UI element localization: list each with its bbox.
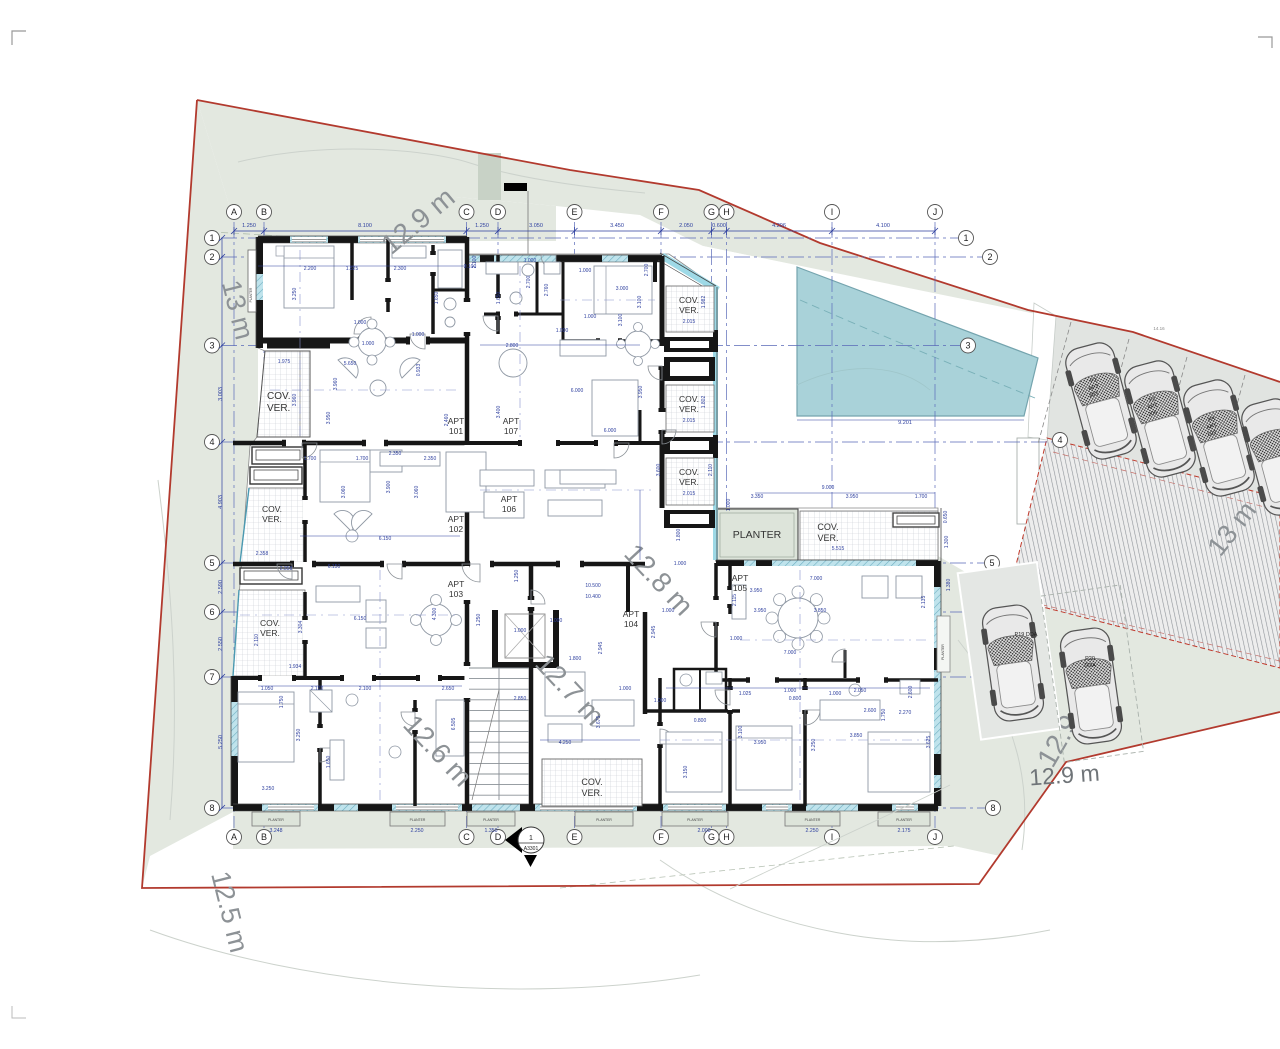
svg-text:2.015: 2.015 bbox=[683, 491, 696, 497]
svg-text:1.050: 1.050 bbox=[261, 686, 274, 692]
svg-text:8: 8 bbox=[990, 803, 995, 813]
svg-text:1.982: 1.982 bbox=[701, 296, 707, 309]
svg-text:2.000: 2.000 bbox=[698, 828, 711, 834]
svg-text:PLANTER: PLANTER bbox=[596, 818, 612, 822]
svg-text:C: C bbox=[463, 832, 470, 842]
svg-text:3.304: 3.304 bbox=[298, 621, 304, 634]
svg-text:PLANTER: PLANTER bbox=[483, 818, 499, 822]
svg-text:PLANTER: PLANTER bbox=[941, 644, 945, 660]
svg-text:2.358: 2.358 bbox=[256, 551, 269, 557]
svg-text:2.100: 2.100 bbox=[359, 686, 372, 692]
svg-text:1.000: 1.000 bbox=[514, 628, 527, 634]
svg-text:3.625: 3.625 bbox=[926, 736, 932, 749]
svg-text:5: 5 bbox=[989, 558, 994, 568]
svg-text:1.000: 1.000 bbox=[412, 332, 425, 338]
svg-text:6.150: 6.150 bbox=[379, 536, 392, 542]
svg-text:0.800: 0.800 bbox=[789, 696, 802, 702]
svg-text:3.950: 3.950 bbox=[638, 386, 644, 399]
svg-text:A3301: A3301 bbox=[524, 846, 539, 852]
svg-text:2.270: 2.270 bbox=[899, 710, 912, 716]
svg-text:1.350: 1.350 bbox=[485, 828, 498, 834]
svg-text:3.900: 3.900 bbox=[386, 481, 392, 494]
svg-text:2.200: 2.200 bbox=[304, 266, 317, 272]
svg-text:B: B bbox=[261, 207, 267, 217]
svg-text:VER.: VER. bbox=[679, 305, 699, 315]
svg-text:3.850: 3.850 bbox=[850, 733, 863, 739]
svg-text:3.950: 3.950 bbox=[754, 608, 767, 614]
svg-text:7.000: 7.000 bbox=[810, 576, 823, 582]
svg-text:PLANTER: PLANTER bbox=[687, 818, 703, 822]
svg-text:1.380: 1.380 bbox=[946, 579, 952, 592]
svg-text:3.248: 3.248 bbox=[270, 828, 283, 834]
svg-text:1.250: 1.250 bbox=[476, 614, 482, 627]
svg-text:1.300: 1.300 bbox=[944, 536, 950, 549]
svg-text:1.000: 1.000 bbox=[784, 688, 797, 694]
svg-text:14.16: 14.16 bbox=[1153, 326, 1165, 331]
svg-text:1.650: 1.650 bbox=[326, 756, 332, 769]
svg-text:4.100: 4.100 bbox=[876, 223, 890, 229]
svg-text:1.250: 1.250 bbox=[514, 570, 520, 583]
svg-text:3.950: 3.950 bbox=[326, 412, 332, 425]
svg-text:2.050: 2.050 bbox=[854, 688, 867, 694]
svg-text:106: 106 bbox=[502, 504, 516, 514]
svg-text:2.700: 2.700 bbox=[526, 276, 532, 289]
svg-text:104: 104 bbox=[624, 619, 638, 629]
svg-text:4.296: 4.296 bbox=[772, 223, 786, 229]
svg-text:VER.: VER. bbox=[817, 533, 838, 543]
svg-text:6.150: 6.150 bbox=[354, 616, 367, 622]
svg-text:3.100: 3.100 bbox=[738, 726, 744, 739]
svg-text:7: 7 bbox=[209, 672, 214, 682]
svg-text:3.060: 3.060 bbox=[414, 486, 420, 499]
svg-text:102: 102 bbox=[449, 524, 463, 534]
svg-text:9.201: 9.201 bbox=[898, 420, 912, 426]
svg-text:A: A bbox=[231, 832, 237, 842]
svg-text:2.300: 2.300 bbox=[394, 266, 407, 272]
svg-text:1.700: 1.700 bbox=[915, 494, 928, 500]
svg-text:105: 105 bbox=[733, 583, 747, 593]
svg-text:6: 6 bbox=[209, 607, 214, 617]
svg-text:PLANTER: PLANTER bbox=[805, 818, 821, 822]
svg-text:1: 1 bbox=[529, 835, 533, 842]
svg-text:A: A bbox=[231, 207, 237, 217]
svg-text:2.100: 2.100 bbox=[464, 264, 477, 270]
svg-text:1.700: 1.700 bbox=[356, 456, 369, 462]
svg-text:H: H bbox=[723, 832, 730, 842]
svg-text:APT: APT bbox=[732, 573, 749, 583]
svg-text:5: 5 bbox=[209, 558, 214, 568]
svg-text:4: 4 bbox=[209, 437, 214, 447]
svg-text:3.600: 3.600 bbox=[656, 464, 662, 477]
svg-text:101: 101 bbox=[449, 426, 463, 436]
svg-text:VER.: VER. bbox=[260, 628, 280, 638]
svg-text:2.460: 2.460 bbox=[444, 414, 450, 427]
svg-text:2.050: 2.050 bbox=[679, 223, 693, 229]
svg-text:H: H bbox=[723, 207, 730, 217]
svg-text:2.760: 2.760 bbox=[544, 284, 550, 297]
svg-text:2.650: 2.650 bbox=[442, 686, 455, 692]
svg-text:3.950: 3.950 bbox=[754, 740, 767, 746]
svg-text:3.350: 3.350 bbox=[751, 494, 764, 500]
svg-text:4.903: 4.903 bbox=[218, 495, 224, 509]
svg-text:PLANTER: PLANTER bbox=[410, 818, 426, 822]
svg-text:PLANTER: PLANTER bbox=[896, 818, 912, 822]
svg-text:1: 1 bbox=[963, 233, 968, 243]
svg-text:C: C bbox=[463, 207, 470, 217]
svg-text:2.600: 2.600 bbox=[908, 686, 914, 699]
svg-text:2.175: 2.175 bbox=[898, 828, 911, 834]
svg-text:3.250: 3.250 bbox=[296, 729, 302, 742]
svg-text:2: 2 bbox=[987, 252, 992, 262]
svg-text:1.000: 1.000 bbox=[730, 636, 743, 642]
svg-text:3.100: 3.100 bbox=[618, 314, 624, 327]
svg-text:1.000: 1.000 bbox=[829, 691, 842, 697]
svg-text:1.000: 1.000 bbox=[654, 698, 667, 704]
svg-text:1.750: 1.750 bbox=[881, 709, 887, 722]
svg-text:7.000: 7.000 bbox=[784, 650, 797, 656]
svg-text:2.015: 2.015 bbox=[683, 418, 696, 424]
svg-text:J: J bbox=[933, 207, 938, 217]
svg-text:APT: APT bbox=[448, 579, 465, 589]
svg-text:1.650: 1.650 bbox=[496, 292, 502, 305]
svg-text:0.800: 0.800 bbox=[694, 718, 707, 724]
svg-text:2.015: 2.015 bbox=[683, 319, 696, 325]
svg-text:I: I bbox=[831, 207, 834, 217]
svg-text:1.000: 1.000 bbox=[550, 618, 563, 624]
svg-text:PLANTER: PLANTER bbox=[733, 529, 782, 541]
svg-text:APT: APT bbox=[448, 514, 465, 524]
svg-text:10.500: 10.500 bbox=[585, 583, 601, 589]
svg-text:COV.: COV. bbox=[260, 618, 280, 628]
svg-text:APT: APT bbox=[448, 416, 465, 426]
svg-text:12.9 m: 12.9 m bbox=[1028, 760, 1100, 791]
svg-text:9.000: 9.000 bbox=[822, 485, 835, 491]
svg-text:2.115: 2.115 bbox=[732, 594, 738, 606]
svg-text:0.650: 0.650 bbox=[943, 511, 949, 524]
svg-text:2.150: 2.150 bbox=[311, 686, 324, 692]
svg-text:COV.: COV. bbox=[679, 295, 699, 305]
svg-text:8.100: 8.100 bbox=[358, 223, 372, 229]
svg-text:3.950: 3.950 bbox=[846, 494, 859, 500]
svg-text:3.050: 3.050 bbox=[529, 223, 543, 229]
svg-text:1.650: 1.650 bbox=[434, 292, 440, 305]
svg-text:3.960: 3.960 bbox=[292, 394, 298, 407]
svg-text:3.850: 3.850 bbox=[814, 608, 827, 614]
svg-text:2: 2 bbox=[209, 252, 214, 262]
svg-text:1.975: 1.975 bbox=[278, 359, 291, 365]
svg-text:3.250: 3.250 bbox=[811, 739, 817, 752]
svg-text:10.400: 10.400 bbox=[585, 594, 601, 600]
svg-text:1.750: 1.750 bbox=[279, 696, 285, 709]
svg-text:1.000: 1.000 bbox=[584, 314, 597, 320]
svg-text:P20: P20 bbox=[1085, 656, 1095, 662]
svg-text:2.800: 2.800 bbox=[506, 343, 519, 349]
svg-text:P19 DDA: P19 DDA bbox=[1015, 632, 1038, 638]
svg-text:2.600: 2.600 bbox=[864, 708, 877, 714]
svg-text:1.800: 1.800 bbox=[569, 656, 582, 662]
svg-text:COV.: COV. bbox=[817, 522, 838, 532]
svg-text:1.934: 1.934 bbox=[289, 664, 302, 670]
svg-text:2.945: 2.945 bbox=[598, 642, 604, 655]
svg-text:APT: APT bbox=[501, 494, 518, 504]
svg-text:J: J bbox=[933, 832, 938, 842]
svg-text:2.358: 2.358 bbox=[280, 566, 293, 572]
svg-text:APT: APT bbox=[503, 416, 520, 426]
svg-text:1.000: 1.000 bbox=[674, 561, 687, 567]
svg-text:2.135: 2.135 bbox=[921, 596, 927, 609]
svg-text:1: 1 bbox=[209, 233, 214, 243]
svg-text:3.250: 3.250 bbox=[262, 786, 275, 792]
svg-text:6.150: 6.150 bbox=[328, 564, 341, 570]
svg-text:103: 103 bbox=[449, 589, 463, 599]
svg-text:1.250: 1.250 bbox=[242, 223, 256, 229]
svg-text:3: 3 bbox=[209, 341, 214, 351]
svg-text:B: B bbox=[261, 832, 267, 842]
svg-text:3: 3 bbox=[965, 341, 970, 351]
svg-text:PLANTER: PLANTER bbox=[268, 818, 284, 822]
svg-text:VER.: VER. bbox=[267, 403, 290, 414]
svg-text:1.700: 1.700 bbox=[304, 456, 317, 462]
svg-text:2.590: 2.590 bbox=[218, 580, 224, 594]
svg-text:1.000: 1.000 bbox=[726, 499, 732, 512]
svg-text:E: E bbox=[571, 832, 577, 842]
svg-text:1.000: 1.000 bbox=[362, 341, 375, 347]
svg-text:3.950: 3.950 bbox=[750, 588, 763, 594]
svg-text:COV.: COV. bbox=[679, 467, 699, 477]
svg-text:D: D bbox=[495, 207, 502, 217]
svg-text:3.100: 3.100 bbox=[637, 296, 643, 309]
svg-text:2.350: 2.350 bbox=[424, 456, 437, 462]
svg-text:COV.: COV. bbox=[262, 504, 282, 514]
svg-text:1.800: 1.800 bbox=[676, 529, 682, 542]
svg-text:4: 4 bbox=[1057, 435, 1062, 445]
svg-text:3.675: 3.675 bbox=[596, 716, 602, 729]
svg-text:0.933: 0.933 bbox=[416, 364, 422, 377]
svg-text:3.400: 3.400 bbox=[496, 406, 502, 419]
svg-text:1.000: 1.000 bbox=[579, 268, 592, 274]
svg-text:2.550: 2.550 bbox=[218, 637, 224, 651]
svg-text:3.960: 3.960 bbox=[333, 378, 339, 391]
svg-text:COV.: COV. bbox=[679, 394, 699, 404]
svg-text:E: E bbox=[571, 207, 577, 217]
svg-text:6.000: 6.000 bbox=[571, 388, 584, 394]
svg-text:DDA: DDA bbox=[1084, 663, 1096, 669]
svg-text:3.000: 3.000 bbox=[616, 286, 629, 292]
svg-text:4.250: 4.250 bbox=[559, 740, 572, 746]
svg-text:APT: APT bbox=[623, 609, 640, 619]
svg-text:1.250: 1.250 bbox=[475, 223, 489, 229]
svg-text:2.945: 2.945 bbox=[651, 626, 657, 639]
svg-text:1.802: 1.802 bbox=[701, 396, 707, 409]
svg-text:2.110: 2.110 bbox=[254, 634, 260, 646]
svg-text:5.250: 5.250 bbox=[218, 735, 224, 749]
svg-text:2.250: 2.250 bbox=[806, 828, 819, 834]
svg-text:6.000: 6.000 bbox=[604, 428, 617, 434]
svg-text:1.000: 1.000 bbox=[556, 328, 569, 334]
svg-text:3.003: 3.003 bbox=[218, 387, 224, 401]
svg-text:5.515: 5.515 bbox=[832, 546, 845, 552]
svg-text:2.850: 2.850 bbox=[514, 696, 527, 702]
svg-text:COV.: COV. bbox=[581, 777, 602, 787]
svg-text:2.110: 2.110 bbox=[708, 464, 714, 476]
svg-text:VER.: VER. bbox=[679, 477, 699, 487]
svg-text:1.825: 1.825 bbox=[346, 266, 359, 272]
svg-text:VER.: VER. bbox=[679, 404, 699, 414]
svg-text:1.000: 1.000 bbox=[524, 258, 537, 264]
svg-text:1.025: 1.025 bbox=[739, 691, 752, 697]
svg-text:8: 8 bbox=[209, 803, 214, 813]
svg-text:1.000: 1.000 bbox=[619, 686, 632, 692]
svg-text:G: G bbox=[708, 207, 715, 217]
svg-text:3.060: 3.060 bbox=[341, 486, 347, 499]
svg-text:F: F bbox=[658, 832, 664, 842]
svg-text:3.250: 3.250 bbox=[292, 288, 298, 301]
svg-text:2.700: 2.700 bbox=[644, 264, 650, 277]
svg-text:107: 107 bbox=[504, 426, 518, 436]
svg-text:5.650: 5.650 bbox=[344, 361, 357, 367]
svg-text:3.150: 3.150 bbox=[683, 766, 689, 779]
svg-text:6.505: 6.505 bbox=[451, 718, 457, 731]
svg-text:1.000: 1.000 bbox=[354, 320, 367, 326]
svg-text:4.300: 4.300 bbox=[432, 608, 438, 621]
svg-text:2.350: 2.350 bbox=[389, 451, 402, 457]
svg-text:COV.: COV. bbox=[267, 391, 291, 402]
svg-text:1.000: 1.000 bbox=[662, 608, 675, 614]
svg-text:VER.: VER. bbox=[262, 514, 282, 524]
svg-text:3.450: 3.450 bbox=[610, 223, 624, 229]
svg-text:2.250: 2.250 bbox=[411, 828, 424, 834]
svg-text:VER.: VER. bbox=[581, 788, 602, 798]
svg-text:F: F bbox=[658, 207, 664, 217]
